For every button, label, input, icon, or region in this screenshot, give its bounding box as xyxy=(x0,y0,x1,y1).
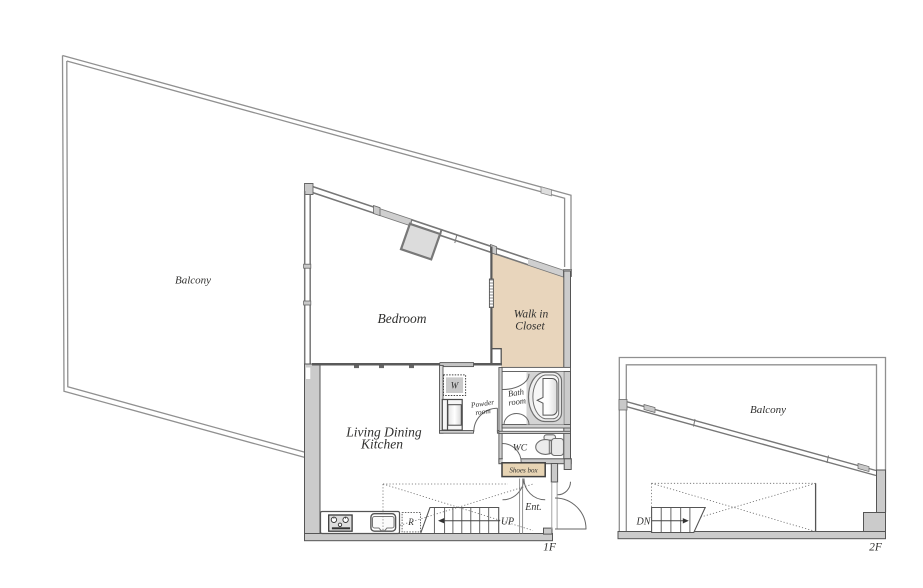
svg-text:Bedroom: Bedroom xyxy=(378,311,427,326)
svg-text:2F: 2F xyxy=(869,542,883,554)
svg-text:Ent.: Ent. xyxy=(524,502,541,513)
svg-text:1F: 1F xyxy=(543,542,557,554)
svg-text:UP: UP xyxy=(501,517,514,528)
svg-text:Balcony: Balcony xyxy=(175,275,211,287)
svg-text:WC: WC xyxy=(513,444,528,454)
svg-text:room: room xyxy=(508,395,527,407)
svg-text:Shoes box: Shoes box xyxy=(509,467,538,475)
svg-text:DN: DN xyxy=(636,516,652,527)
svg-text:Balcony: Balcony xyxy=(750,404,786,416)
svg-text:Walk in: Walk in xyxy=(514,309,549,321)
svg-text:R: R xyxy=(407,517,414,527)
svg-text:Kitchen: Kitchen xyxy=(360,437,403,452)
svg-text:Closet: Closet xyxy=(515,321,545,333)
svg-text:room: room xyxy=(475,406,492,417)
